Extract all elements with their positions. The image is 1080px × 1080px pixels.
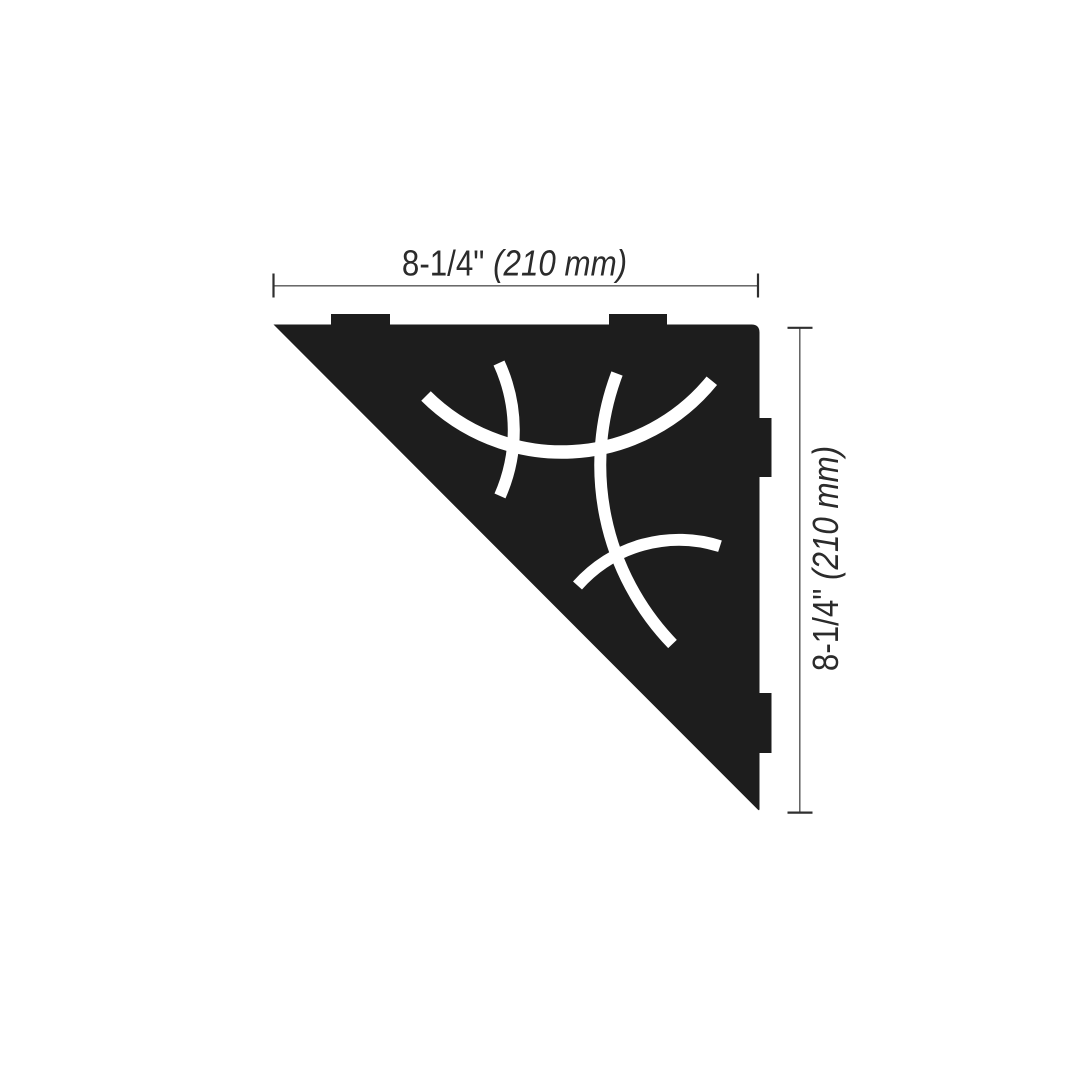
svg-text:8-1/4" (210 mm): 8-1/4" (210 mm) [402, 243, 627, 284]
svg-text:8-1/4" (210 mm): 8-1/4" (210 mm) [806, 446, 847, 671]
